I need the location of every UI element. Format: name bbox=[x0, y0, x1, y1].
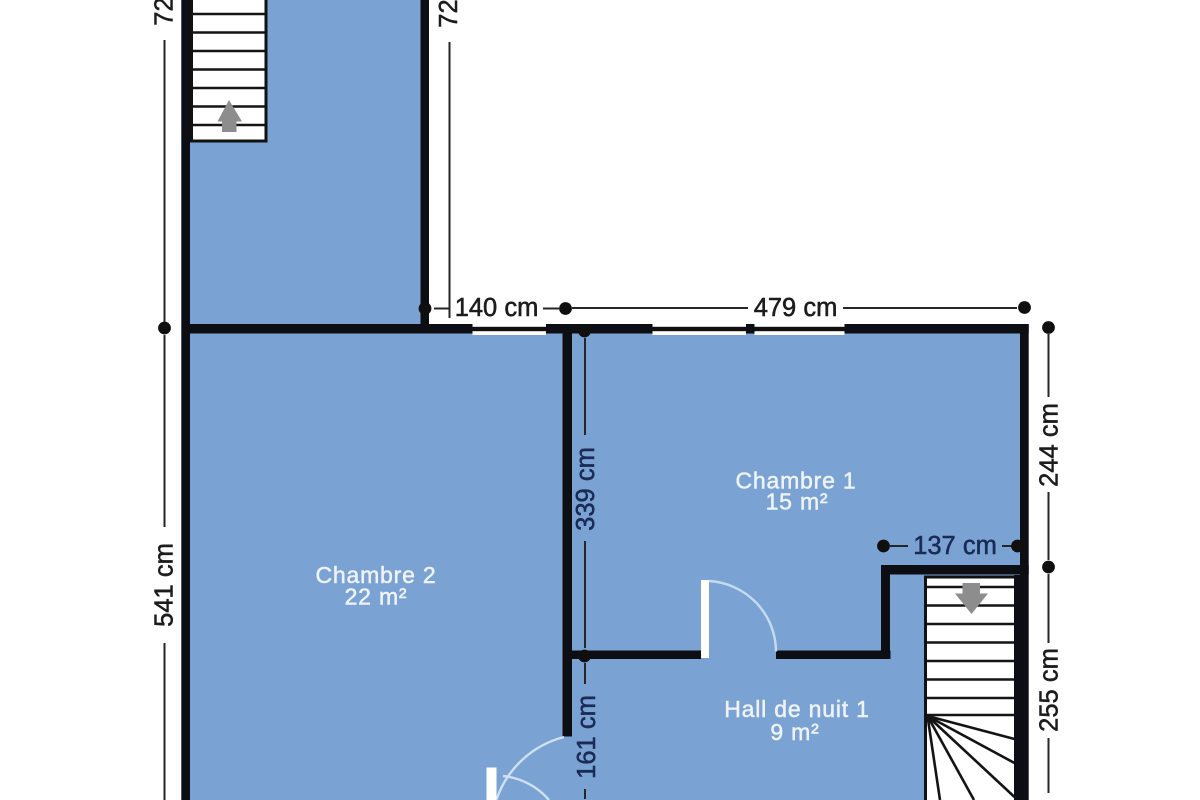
svg-text:72: 72 bbox=[151, 0, 179, 26]
svg-text:22 m²: 22 m² bbox=[345, 584, 408, 610]
svg-text:339 cm: 339 cm bbox=[572, 447, 600, 531]
svg-text:72: 72 bbox=[435, 0, 463, 28]
svg-text:479 cm: 479 cm bbox=[754, 294, 838, 322]
svg-text:137 cm: 137 cm bbox=[913, 532, 997, 560]
svg-text:244 cm: 244 cm bbox=[1036, 403, 1064, 487]
svg-text:140 cm: 140 cm bbox=[455, 294, 539, 322]
svg-text:255 cm: 255 cm bbox=[1036, 648, 1064, 732]
svg-text:15 m²: 15 m² bbox=[766, 489, 829, 515]
svg-text:161 cm: 161 cm bbox=[573, 695, 601, 779]
svg-text:541 cm: 541 cm bbox=[151, 543, 179, 627]
svg-text:9 m²: 9 m² bbox=[770, 719, 819, 745]
